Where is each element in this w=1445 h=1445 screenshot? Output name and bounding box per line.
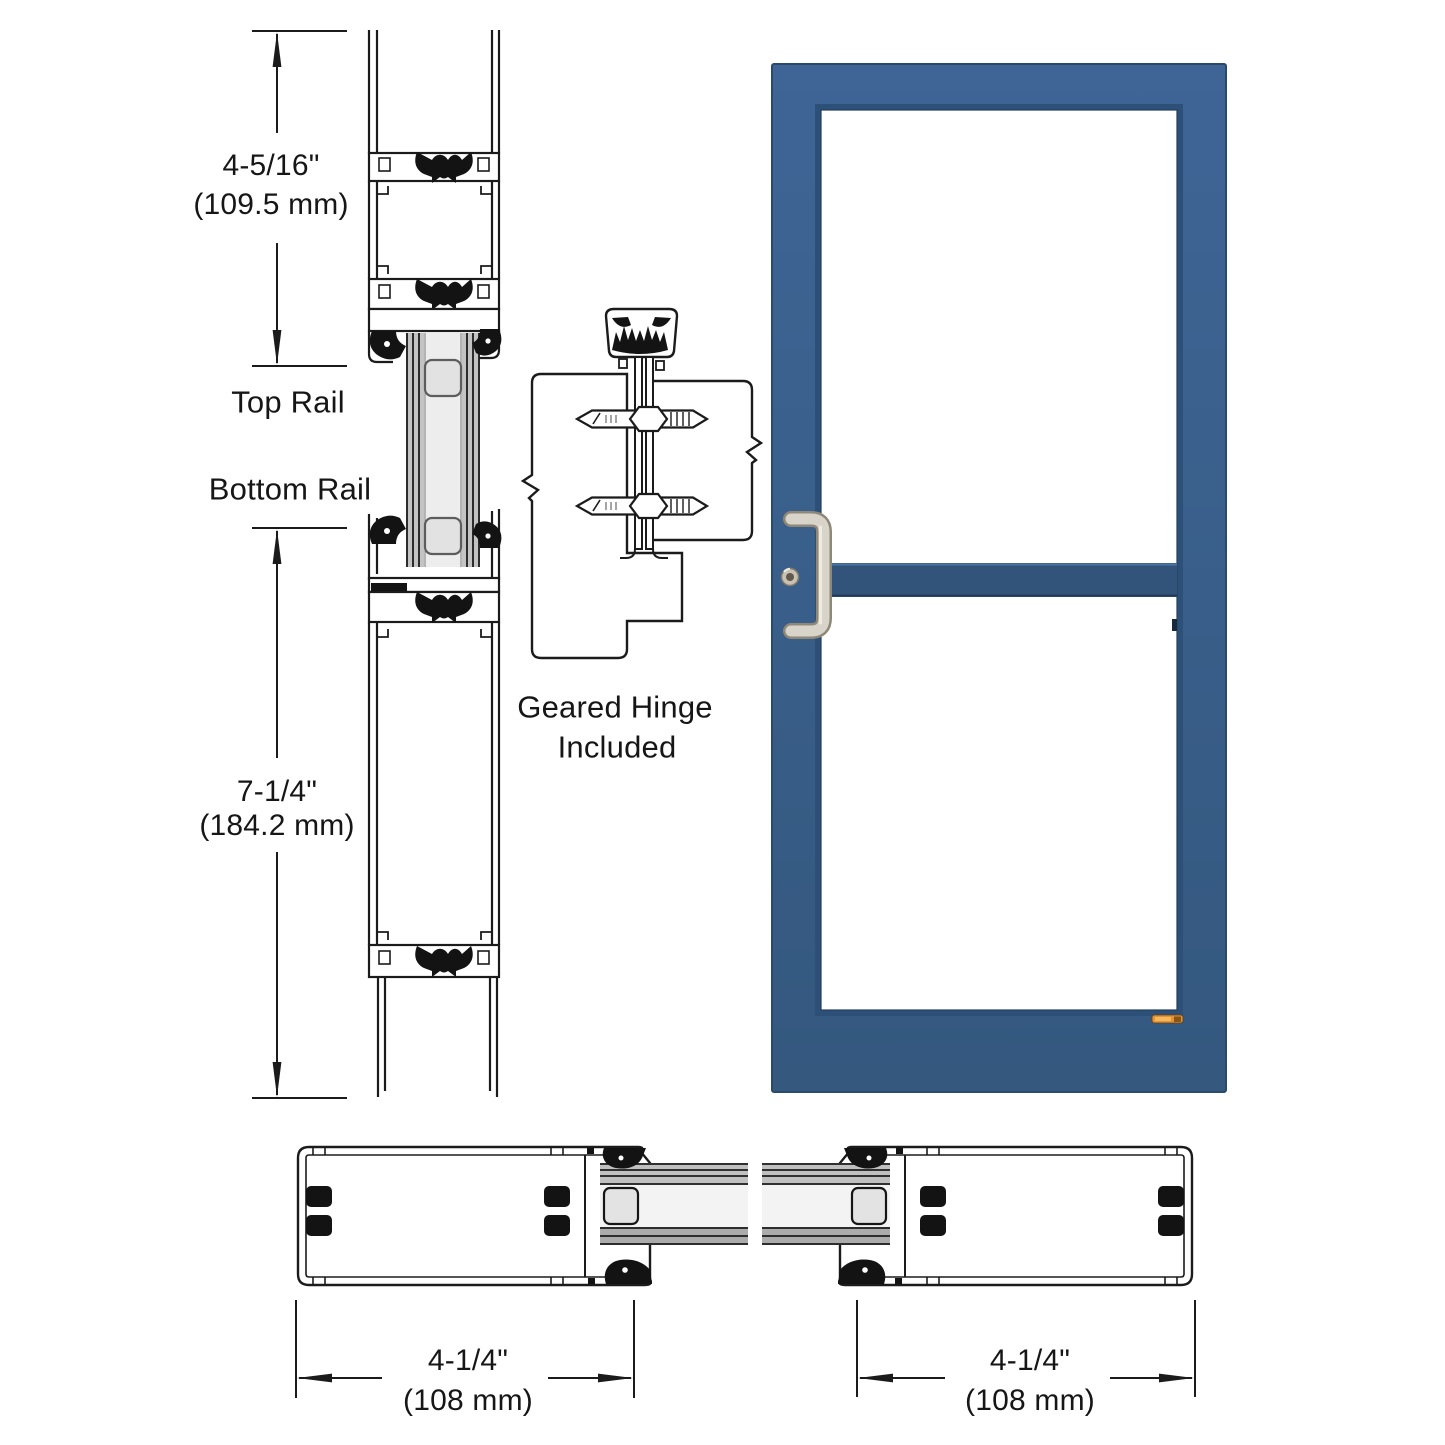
label-bottom-rail: Bottom Rail <box>209 474 371 505</box>
door-mid-rail <box>821 563 1177 597</box>
door-elevation <box>772 64 1226 1092</box>
dim-bottom-rail-inches: 7-1/4" <box>237 777 317 807</box>
frame-jamb-plate <box>650 381 761 540</box>
arrowhead-down-icon <box>273 330 282 365</box>
arrowhead-down-icon <box>273 1062 282 1097</box>
dim-left-stile-mm: (108 mm) <box>403 1386 533 1416</box>
arrowhead-left-icon <box>858 1374 893 1383</box>
arrowhead-left-icon <box>297 1374 332 1383</box>
hinge-screw-upper <box>577 407 707 431</box>
label-top-rail: Top Rail <box>231 387 345 418</box>
dim-right-stile-inches: 4-1/4" <box>990 1346 1070 1376</box>
brand-label <box>1152 1015 1183 1023</box>
arrowhead-right-icon <box>598 1374 633 1383</box>
door-glass <box>821 110 1177 1010</box>
label-geared-hinge-line2: Included <box>558 732 677 763</box>
glass-spacer-right <box>852 1188 886 1224</box>
glass-unit-plan-section <box>600 1163 890 1245</box>
stile-plan-section-left <box>298 1147 651 1285</box>
label-geared-hinge-line1: Geared Hinge <box>517 692 712 723</box>
glass-unit-vertical-section <box>406 333 480 567</box>
arrowhead-right-icon <box>1159 1374 1194 1383</box>
product-diagram-canvas: 4-5/16" (109.5 mm) Top Rail Bottom Rail … <box>0 0 1445 1445</box>
dim-left-stile-inches: 4-1/4" <box>428 1346 508 1376</box>
hinge-screw-lower <box>577 494 707 518</box>
bottom-rail-section <box>369 509 501 1097</box>
stile-plan-section-right <box>839 1147 1192 1285</box>
dim-right-stile-mm: (108 mm) <box>965 1386 1095 1416</box>
hinge-edge-mark <box>1172 619 1177 631</box>
dim-bottom-rail-mm: (184.2 mm) <box>199 811 354 841</box>
glass-spacer-bottom <box>425 518 461 554</box>
arrowhead-up-icon <box>273 32 282 67</box>
dim-top-rail-inches: 4-5/16" <box>222 151 319 181</box>
geared-hinge-detail <box>523 309 761 658</box>
dim-top-rail-mm: (109.5 mm) <box>193 190 348 220</box>
glass-spacer-top <box>425 360 461 396</box>
lock-cylinder <box>782 569 799 586</box>
glass-spacer-left <box>604 1188 638 1224</box>
top-rail-section <box>369 30 501 362</box>
arrowhead-up-icon <box>273 529 282 564</box>
